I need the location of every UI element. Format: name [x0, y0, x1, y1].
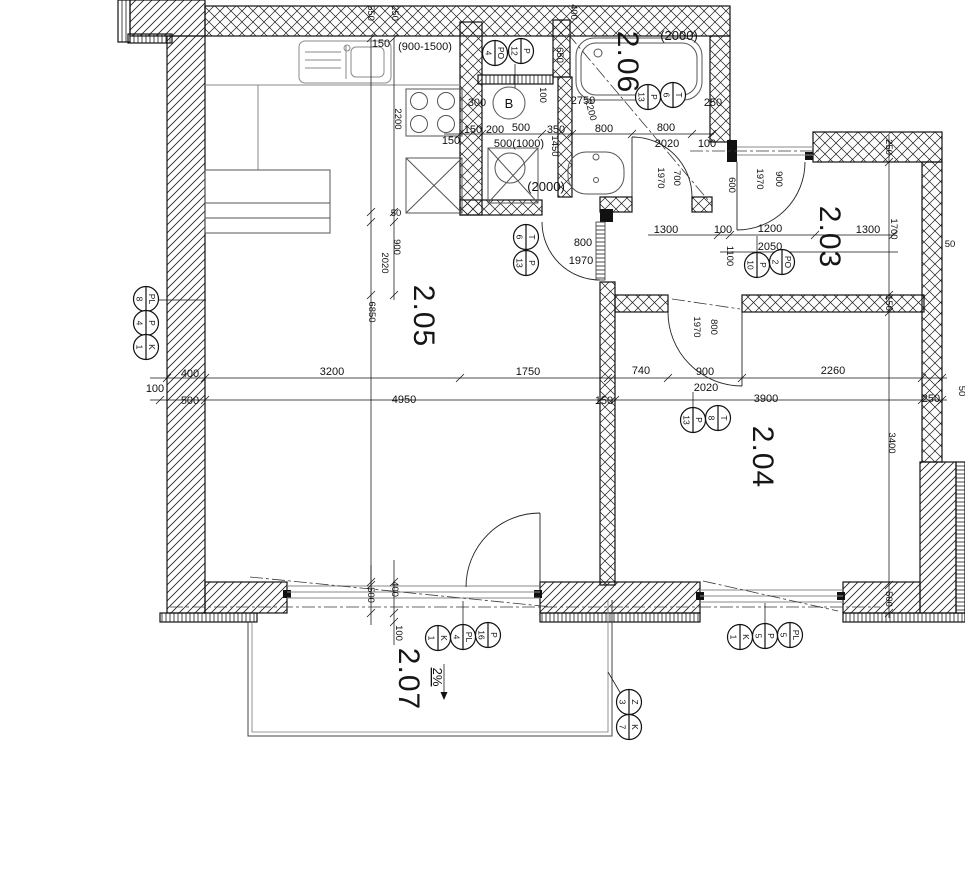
insulation-bottom-c [843, 613, 965, 622]
dim: 3900 [754, 393, 778, 405]
dim: 150 [464, 124, 482, 136]
dim: 400 [181, 368, 199, 380]
marker-p4: P 4 [134, 311, 159, 336]
closet-door-strip [478, 75, 553, 84]
marker-po4: PO 4 [483, 41, 508, 66]
room-label-terrace: 2.07 [392, 648, 425, 710]
dim: 740 [632, 365, 650, 377]
svg-text:4: 4 [452, 635, 462, 640]
svg-text:3: 3 [618, 700, 628, 705]
svg-text:6: 6 [515, 235, 525, 240]
svg-text:P: P [649, 94, 659, 100]
dim: 2020 [379, 252, 390, 273]
marker-p10: P 10 [745, 253, 770, 278]
dim: 500 [181, 395, 199, 407]
dim: 1750 [516, 366, 540, 378]
marker-pl5: PL 5 [778, 623, 803, 648]
wall-living-east [600, 282, 615, 585]
washbasin-bath [568, 152, 624, 194]
kitchen-shaft [406, 158, 462, 213]
insulation-right [956, 462, 965, 613]
svg-text:PO: PO [496, 47, 506, 60]
dim: 1970 [655, 167, 666, 188]
svg-text:P: P [527, 260, 537, 266]
svg-text:K: K [147, 344, 157, 350]
dim: 800 [574, 237, 592, 249]
svg-text:PL: PL [791, 630, 801, 641]
marker-p13-bath: P 13 [636, 85, 661, 110]
kitchen-fixtures [205, 41, 462, 233]
floor-plan-canvas: B [0, 0, 965, 879]
dim: 1100 [724, 246, 735, 266]
dim: 900 [696, 366, 714, 378]
dim: 3200 [320, 366, 344, 378]
dim: 100 [393, 625, 404, 641]
tub-length-label: (2000) [660, 28, 698, 43]
dim: 1300 [654, 224, 678, 236]
wall-corner-bottomright [920, 462, 956, 613]
dim: 900 [391, 239, 402, 255]
dim: 3400 [886, 432, 897, 453]
marker-p16: P 16 [476, 623, 501, 648]
insulation-bottomleft [160, 613, 257, 622]
dim: 1970 [691, 316, 702, 337]
marker-k1-window1: K 1 [426, 626, 451, 651]
dim: 2260 [821, 365, 845, 377]
marker-t8: T 8 [706, 406, 731, 431]
dim: 200 [486, 124, 504, 136]
wall-hall-top [813, 132, 942, 162]
svg-text:10: 10 [746, 260, 756, 270]
wall-wc-left [460, 22, 482, 215]
dim: 100 [714, 224, 732, 236]
dim: 6850 [366, 301, 377, 322]
dim: 50 [391, 208, 402, 219]
chain-lines [170, 34, 880, 611]
room-label-hall: 2.03 [813, 206, 846, 268]
svg-text:P: P [758, 262, 768, 268]
svg-text:P: P [489, 632, 499, 638]
dim: 600 [726, 177, 737, 193]
svg-text:P: P [147, 320, 157, 326]
svg-text:Z: Z [630, 699, 640, 704]
dim: 150 [595, 395, 613, 407]
marker-p5: P 5 [753, 624, 778, 649]
svg-text:T: T [674, 92, 684, 97]
dim: 150 [442, 135, 460, 147]
wall-corridor-b [742, 295, 924, 312]
door-entry-hall [737, 162, 805, 230]
svg-text:P: P [694, 417, 704, 423]
marker-t6-living: T 6 [514, 225, 539, 250]
svg-text:PL: PL [147, 294, 157, 305]
dim: 300 [468, 97, 486, 109]
dim: 650 [554, 47, 565, 63]
svg-text:1: 1 [135, 345, 145, 350]
dim: 500 [365, 587, 376, 603]
boiler: B [493, 87, 525, 119]
dim: 250 [389, 5, 400, 21]
svg-text:K: K [630, 724, 640, 730]
wall-corridor-a [615, 295, 668, 312]
jamb-block [534, 590, 542, 598]
svg-text:2: 2 [771, 260, 781, 265]
dim: 400 [389, 581, 400, 597]
room-label-bedroom: 2.04 [746, 426, 779, 488]
slope-label: 2% [430, 668, 445, 687]
wall-corner-topleft [130, 0, 205, 36]
room-label-bath: 2.06 [611, 31, 644, 93]
kitchen-cabinet-low [205, 170, 330, 233]
dim: 50 [945, 239, 956, 250]
svg-text:13: 13 [637, 92, 647, 102]
dim: 400 [568, 4, 579, 20]
insulation-topleft-h [128, 34, 172, 43]
wall-bath-bottom-r [692, 197, 712, 212]
dim: 500 [512, 122, 530, 134]
wall-left [167, 36, 205, 613]
svg-text:1: 1 [427, 636, 437, 641]
svg-text:P: P [766, 633, 776, 639]
svg-text:5: 5 [779, 633, 789, 638]
stove [406, 89, 462, 136]
svg-text:PL: PL [464, 632, 474, 643]
svg-text:4: 4 [484, 51, 494, 56]
marker-k7: K 7 [617, 715, 642, 740]
shower-length-label: (2000) [527, 179, 565, 194]
insulation-bottom-b [540, 613, 700, 622]
dim: 250 [883, 139, 894, 155]
svg-text:12: 12 [510, 46, 520, 56]
dim: 900 [773, 171, 784, 187]
dim-ticks-h1 [156, 374, 946, 404]
svg-text:K: K [439, 635, 449, 641]
wall-bottom-c [843, 582, 920, 613]
dim: 250 [704, 97, 722, 109]
svg-text:13: 13 [682, 415, 692, 425]
dim: 100 [537, 87, 548, 103]
marker-pl8: PL 8 [134, 287, 159, 312]
marker-p13-living: P 13 [514, 251, 539, 276]
dim: 1970 [754, 168, 765, 189]
svg-text:6: 6 [662, 93, 672, 98]
svg-text:PO: PO [783, 256, 793, 269]
svg-text:7: 7 [618, 725, 628, 730]
boiler-label: B [505, 96, 514, 111]
dim: 1700 [888, 218, 899, 239]
jamb-block [283, 590, 291, 598]
svg-text:8: 8 [707, 416, 717, 421]
dim: 800 [595, 123, 613, 135]
wall-right [922, 162, 942, 462]
dim: 250 [922, 393, 940, 405]
jamb-block [805, 152, 813, 160]
marker-p13-bedroom: P 13 [681, 408, 706, 433]
dim: 50 [956, 386, 965, 397]
dim: 550 [365, 5, 376, 21]
marker-k1-window2: K 1 [728, 625, 753, 650]
svg-text:P: P [522, 48, 532, 54]
dim: 1450 [549, 135, 560, 156]
wall-bottom-a [205, 582, 287, 613]
wall-bottom-b [540, 582, 700, 613]
dim: 800 [708, 319, 719, 335]
svg-text:13: 13 [515, 258, 525, 268]
shower-shaft [488, 148, 538, 203]
dim: 700 [671, 170, 682, 186]
dim: 100 [698, 138, 716, 150]
marker-p12: P 12 [509, 39, 534, 64]
dim: 100 [146, 383, 164, 395]
window-living [287, 586, 540, 598]
svg-text:T: T [527, 234, 537, 239]
door-living [542, 222, 605, 280]
door-terrace [466, 513, 540, 587]
svg-text:K: K [741, 634, 751, 640]
svg-text:16: 16 [477, 630, 487, 640]
dim: 4950 [392, 394, 416, 406]
marker-z3: Z 3 [617, 690, 642, 715]
dim: 2200 [582, 99, 598, 122]
dim: 350 [547, 124, 565, 136]
dim: 150 [883, 295, 894, 311]
dim: 800 [657, 122, 675, 134]
marker-pl4: PL 4 [451, 625, 476, 650]
wc-width-label: 500(1000) [494, 138, 544, 150]
windows [287, 147, 843, 602]
dim: 150 [372, 38, 390, 50]
wall-bath-right [710, 36, 730, 142]
svg-text:4: 4 [135, 321, 145, 326]
counter-range-label: (900-1500) [398, 41, 452, 53]
dim: 2020 [655, 138, 679, 150]
marker-k1-left: K 1 [134, 335, 159, 360]
dim: 1970 [569, 255, 593, 267]
dim: 1200 [758, 223, 782, 235]
svg-text:T: T [719, 415, 729, 420]
floor-plan-page: B [0, 0, 965, 879]
door-post [600, 209, 613, 222]
svg-text:5: 5 [754, 634, 764, 639]
marker-t6-bath: T 6 [661, 83, 686, 108]
marker-po2: PO 2 [770, 250, 795, 275]
dim: 2020 [694, 382, 718, 394]
svg-text:8: 8 [135, 297, 145, 302]
room-label-living: 2.05 [407, 285, 440, 347]
dim: 500 [883, 591, 894, 607]
dim: 2200 [392, 108, 403, 129]
svg-text:1: 1 [729, 635, 739, 640]
dim: 1300 [856, 224, 880, 236]
